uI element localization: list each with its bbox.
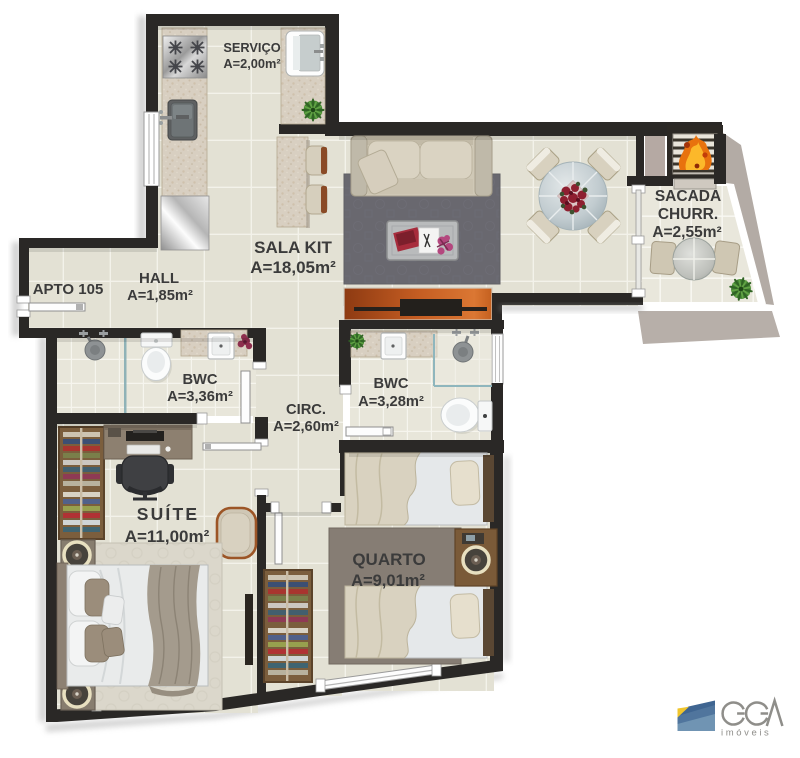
svg-text:SUÍTE: SUÍTE	[137, 503, 200, 524]
svg-text:A=3,36m²: A=3,36m²	[167, 389, 233, 405]
svg-text:BWC: BWC	[182, 372, 217, 388]
svg-text:CHURR.: CHURR.	[658, 206, 718, 223]
svg-text:SACADA: SACADA	[655, 188, 721, 205]
svg-text:BWC: BWC	[373, 376, 408, 392]
svg-text:A=18,05m²: A=18,05m²	[250, 258, 336, 277]
svg-text:SALA KIT: SALA KIT	[254, 238, 332, 257]
svg-text:A=3,28m²: A=3,28m²	[358, 394, 424, 410]
svg-text:QUARTO: QUARTO	[352, 550, 425, 569]
svg-text:A=1,85m²: A=1,85m²	[127, 288, 193, 304]
svg-text:A=11,00m²: A=11,00m²	[125, 527, 210, 546]
svg-text:APTO 105: APTO 105	[33, 281, 104, 298]
svg-text:A=2,55m²: A=2,55m²	[652, 224, 721, 241]
svg-text:A=2,60m²: A=2,60m²	[273, 419, 339, 435]
svg-text:A=2,00m²: A=2,00m²	[223, 56, 280, 71]
svg-text:SERVIÇO: SERVIÇO	[223, 40, 280, 55]
svg-text:imóveis: imóveis	[721, 728, 771, 739]
svg-text:HALL: HALL	[139, 270, 179, 287]
svg-text:A=9,01m²: A=9,01m²	[351, 572, 425, 590]
svg-text:CIRC.: CIRC.	[286, 402, 326, 418]
